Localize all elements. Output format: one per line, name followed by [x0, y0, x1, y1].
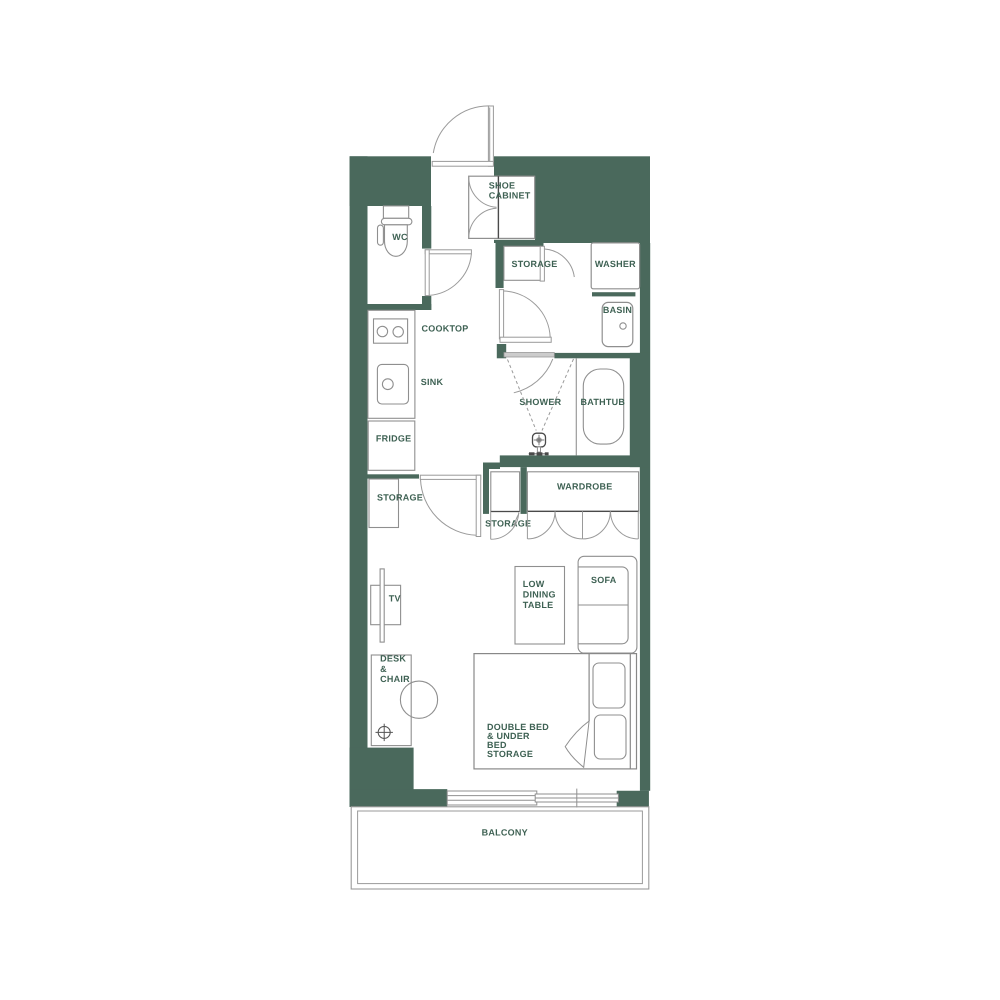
svg-text:DESK: DESK: [380, 654, 406, 664]
svg-text:BALCONY: BALCONY: [482, 827, 528, 837]
svg-text:DINING: DINING: [523, 590, 556, 600]
svg-text:&: &: [380, 664, 387, 674]
svg-text:WC: WC: [392, 232, 408, 242]
svg-text:STORAGE: STORAGE: [377, 492, 423, 502]
svg-text:SHOE: SHOE: [489, 180, 516, 190]
svg-text:STORAGE: STORAGE: [485, 518, 531, 528]
svg-text:SOFA: SOFA: [591, 575, 617, 585]
svg-text:BATHTUB: BATHTUB: [581, 397, 626, 407]
svg-text:CHAIR: CHAIR: [380, 674, 410, 684]
svg-text:TABLE: TABLE: [523, 600, 554, 610]
svg-text:FRIDGE: FRIDGE: [376, 434, 412, 444]
svg-text:WARDROBE: WARDROBE: [557, 481, 613, 491]
svg-text:WASHER: WASHER: [595, 259, 636, 269]
svg-text:LOW: LOW: [523, 579, 545, 589]
svg-text:STORAGE: STORAGE: [511, 259, 557, 269]
svg-text:CABINET: CABINET: [489, 191, 531, 201]
svg-text:SINK: SINK: [421, 377, 444, 387]
svg-text:TV: TV: [389, 593, 401, 603]
svg-text:BASIN: BASIN: [603, 305, 632, 315]
svg-text:STORAGE: STORAGE: [487, 749, 533, 759]
svg-text:SHOWER: SHOWER: [519, 397, 561, 407]
svg-text:COOKTOP: COOKTOP: [421, 324, 468, 334]
